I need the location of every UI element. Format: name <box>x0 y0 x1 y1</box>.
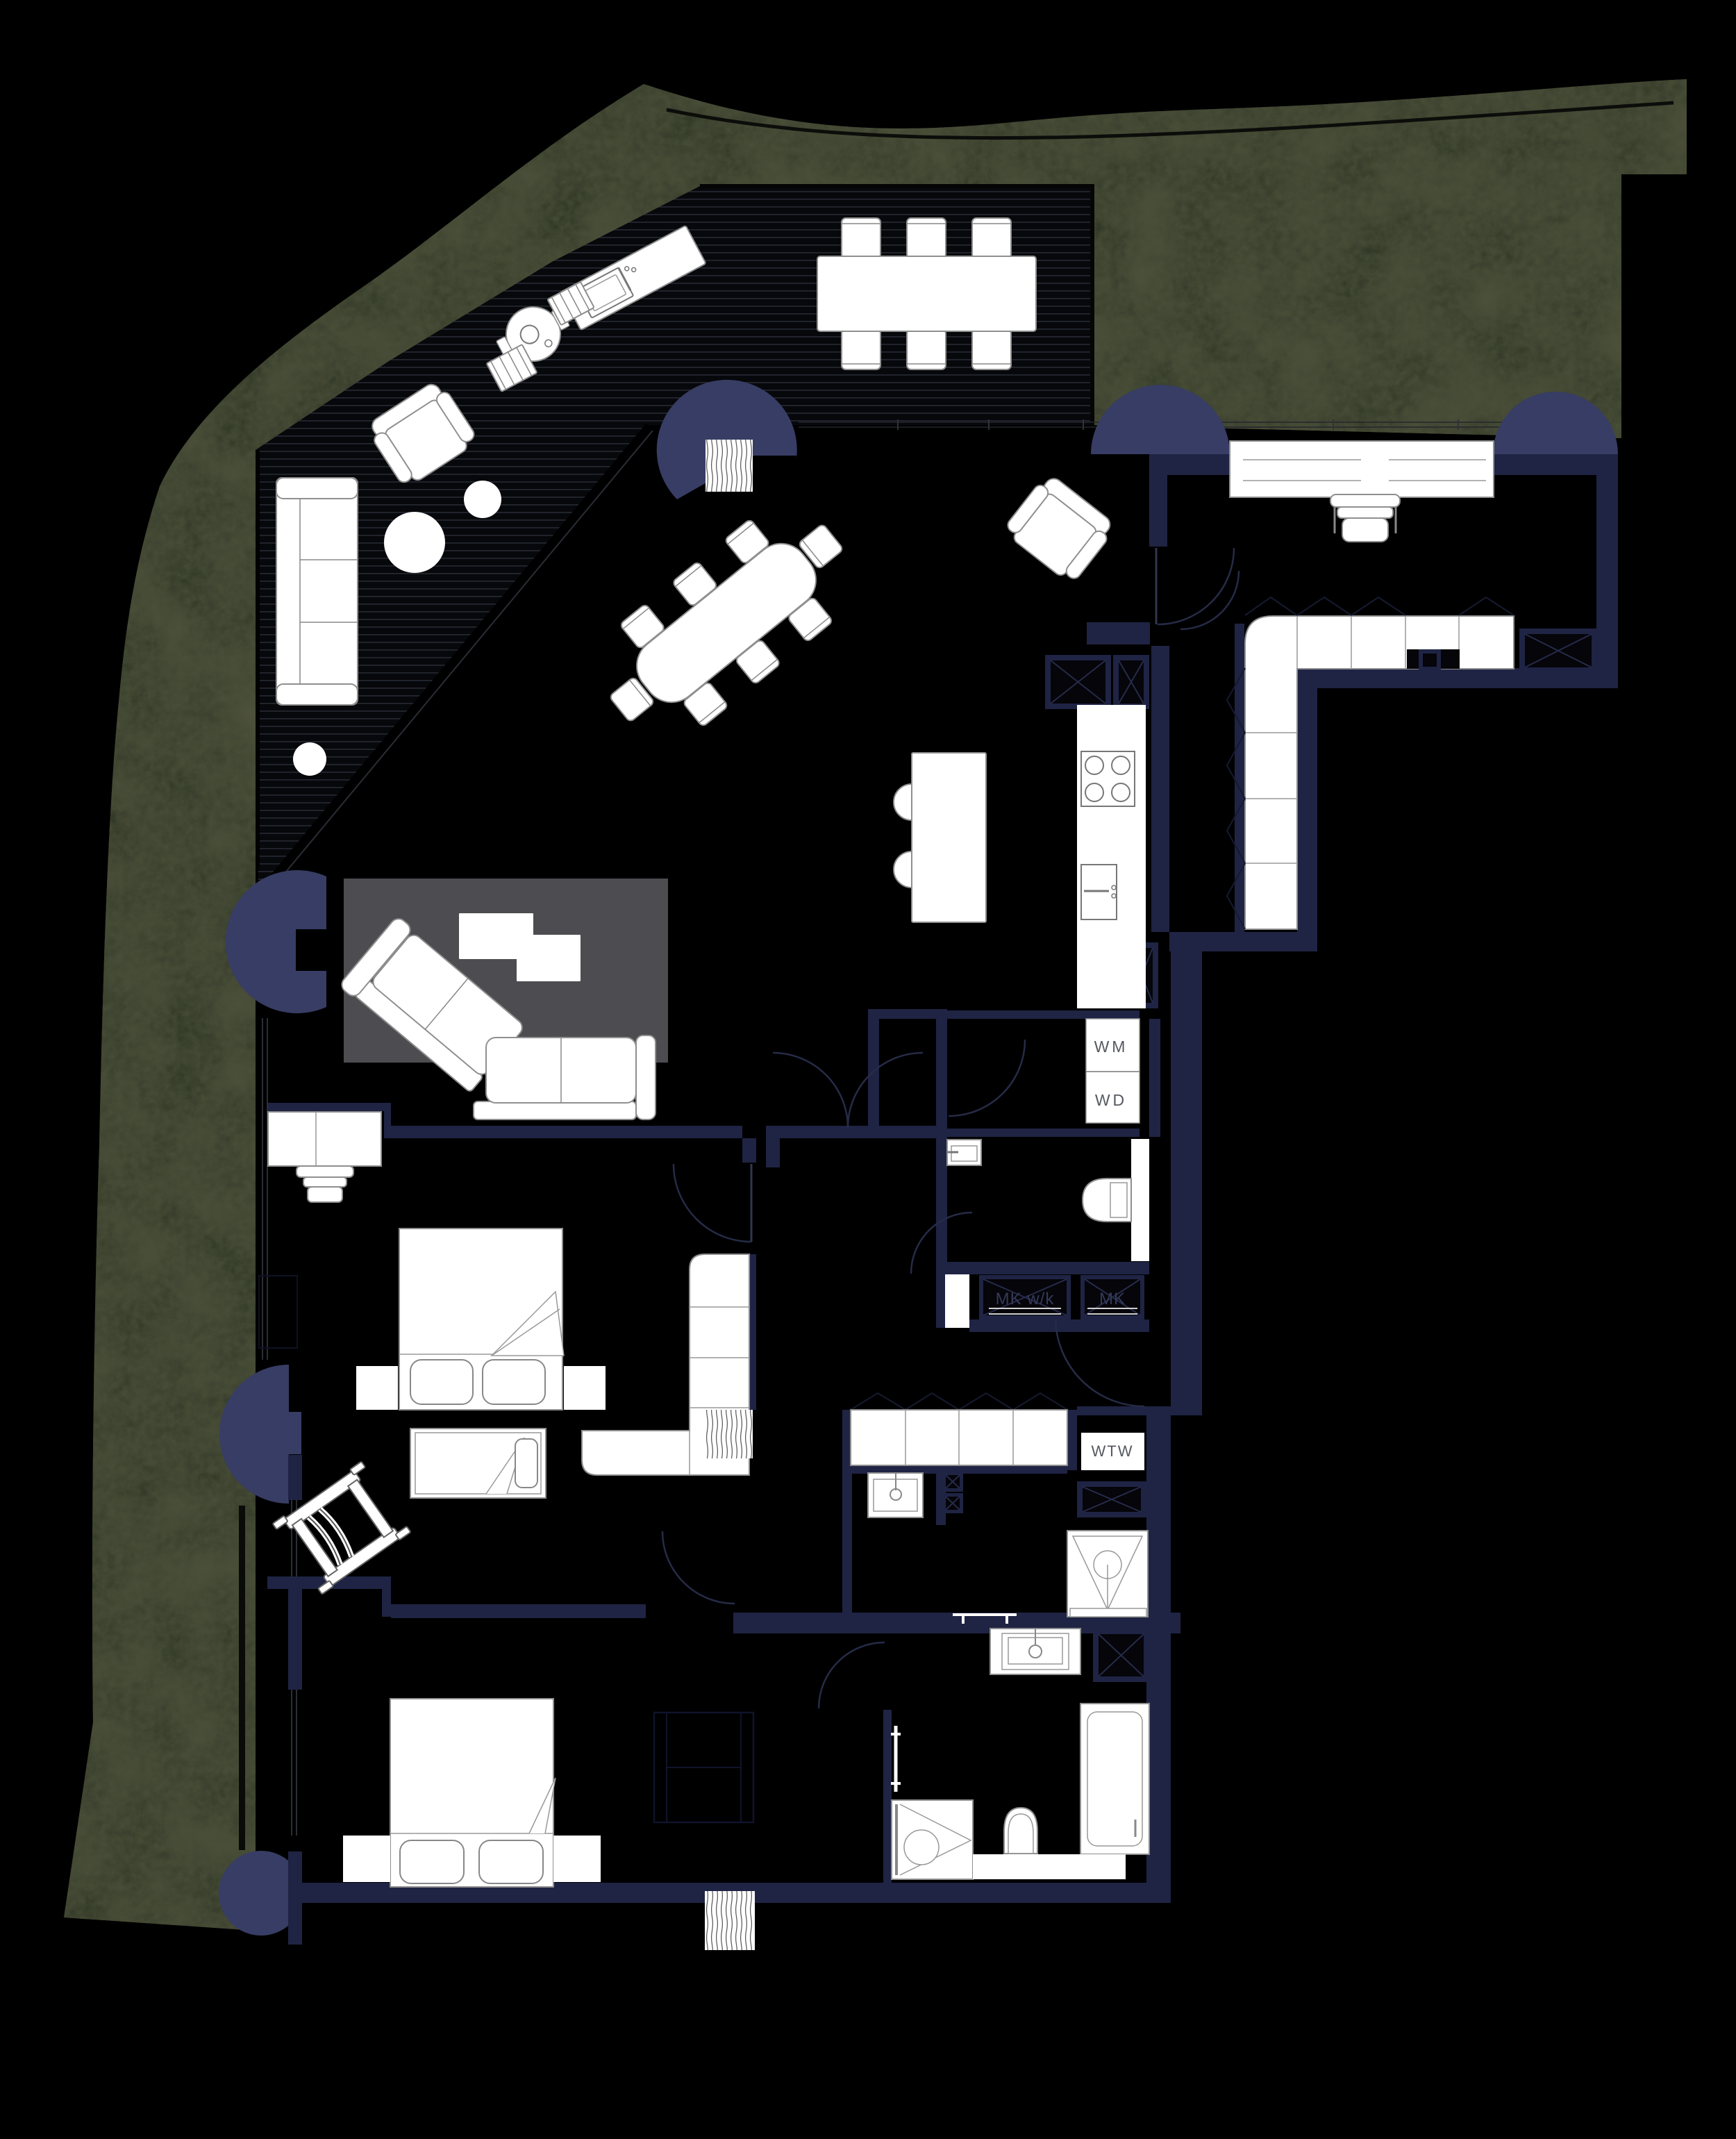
svg-text:WTW: WTW <box>1092 1442 1134 1460</box>
svg-text:MK: MK <box>1099 1290 1126 1308</box>
svg-text:WM: WM <box>1094 1038 1128 1056</box>
svg-text:WD: WD <box>1095 1091 1127 1109</box>
svg-text:MK w/k: MK w/k <box>996 1290 1055 1308</box>
